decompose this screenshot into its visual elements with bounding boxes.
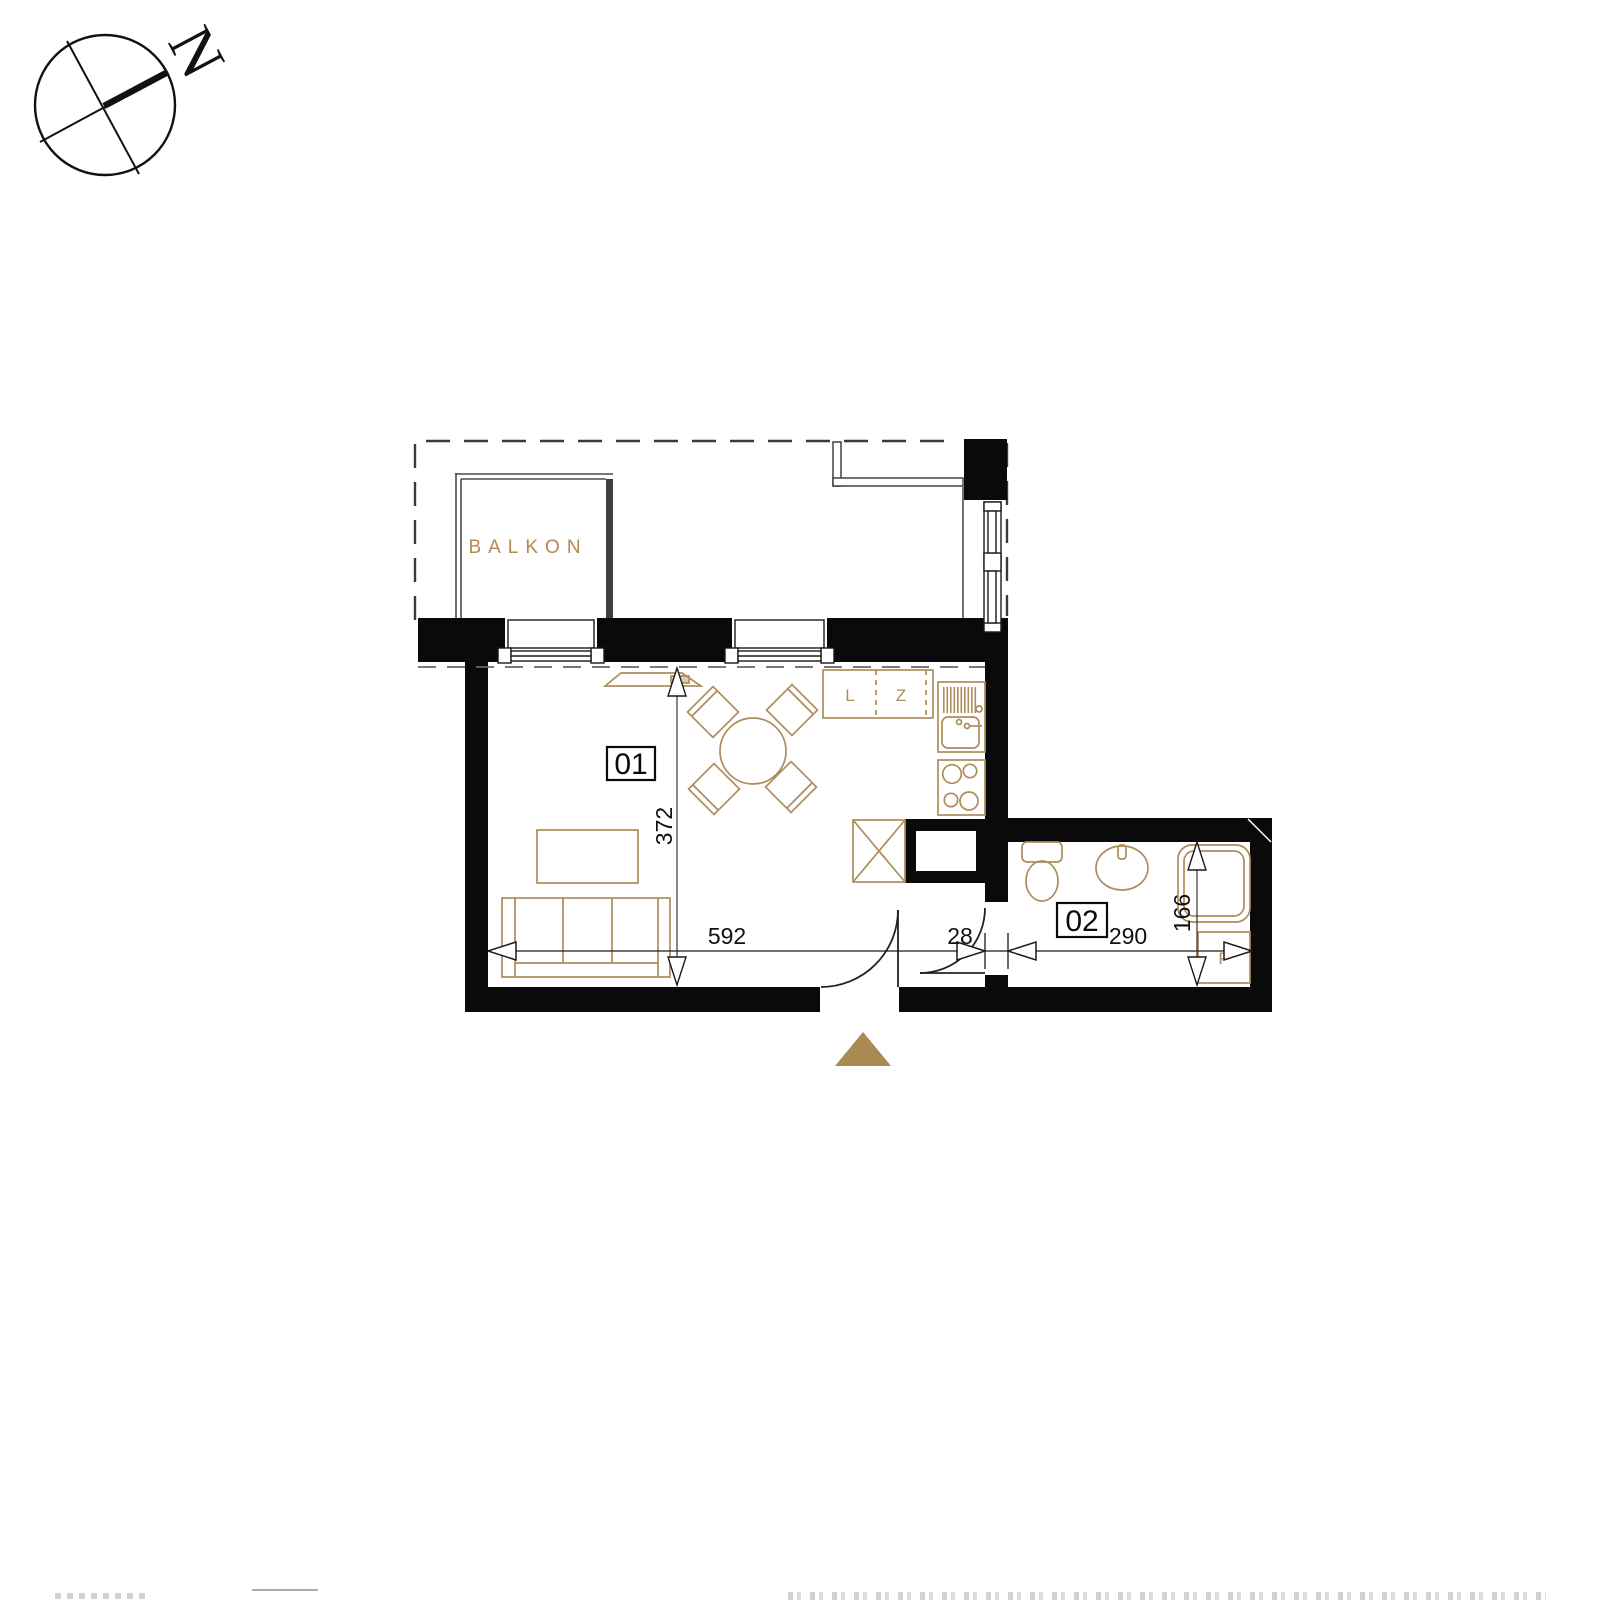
balcony-label: BALKON: [468, 537, 587, 558]
clipped-footer-marks-left: [55, 1593, 150, 1599]
room-label-02: 02: [1057, 903, 1107, 938]
dim-living-depth: 372: [651, 807, 677, 845]
wall-bath-top: [1008, 818, 1272, 842]
wall-bottom-left: [465, 987, 820, 1012]
balcony-edge: [606, 479, 613, 620]
shaft-opening: [916, 831, 976, 871]
room-02-number: 02: [1065, 905, 1098, 938]
floor-plan-drawing: BALKON: [0, 0, 1600, 1600]
window-balcony: [498, 620, 604, 663]
cabinet-label-l: L: [845, 686, 854, 705]
wall-left: [465, 662, 488, 1012]
window-2: [725, 620, 834, 663]
facade-pillar: [964, 439, 1007, 500]
clipped-footer-scale-line: [252, 1589, 318, 1600]
window-facade-vertical: [984, 502, 1001, 632]
wall-right-upper: [985, 662, 1008, 902]
wall-bath-bottom: [985, 987, 1272, 1012]
dim-bathroom-width: 290: [1109, 923, 1147, 949]
floor-plan-page: BALKON: [0, 0, 1600, 1600]
dim-bathroom-depth: 166: [1169, 894, 1195, 932]
room-01-number: 01: [614, 748, 647, 781]
cabinet-label-z: Z: [896, 686, 906, 705]
clipped-footer-text: [788, 1592, 1546, 1600]
wall-bath-right: [1250, 842, 1272, 1012]
dim-living-width: 592: [708, 923, 746, 949]
background: [0, 0, 1600, 1600]
dim-wall-thickness: 28: [947, 923, 973, 949]
room-label-01: 01: [607, 747, 655, 781]
